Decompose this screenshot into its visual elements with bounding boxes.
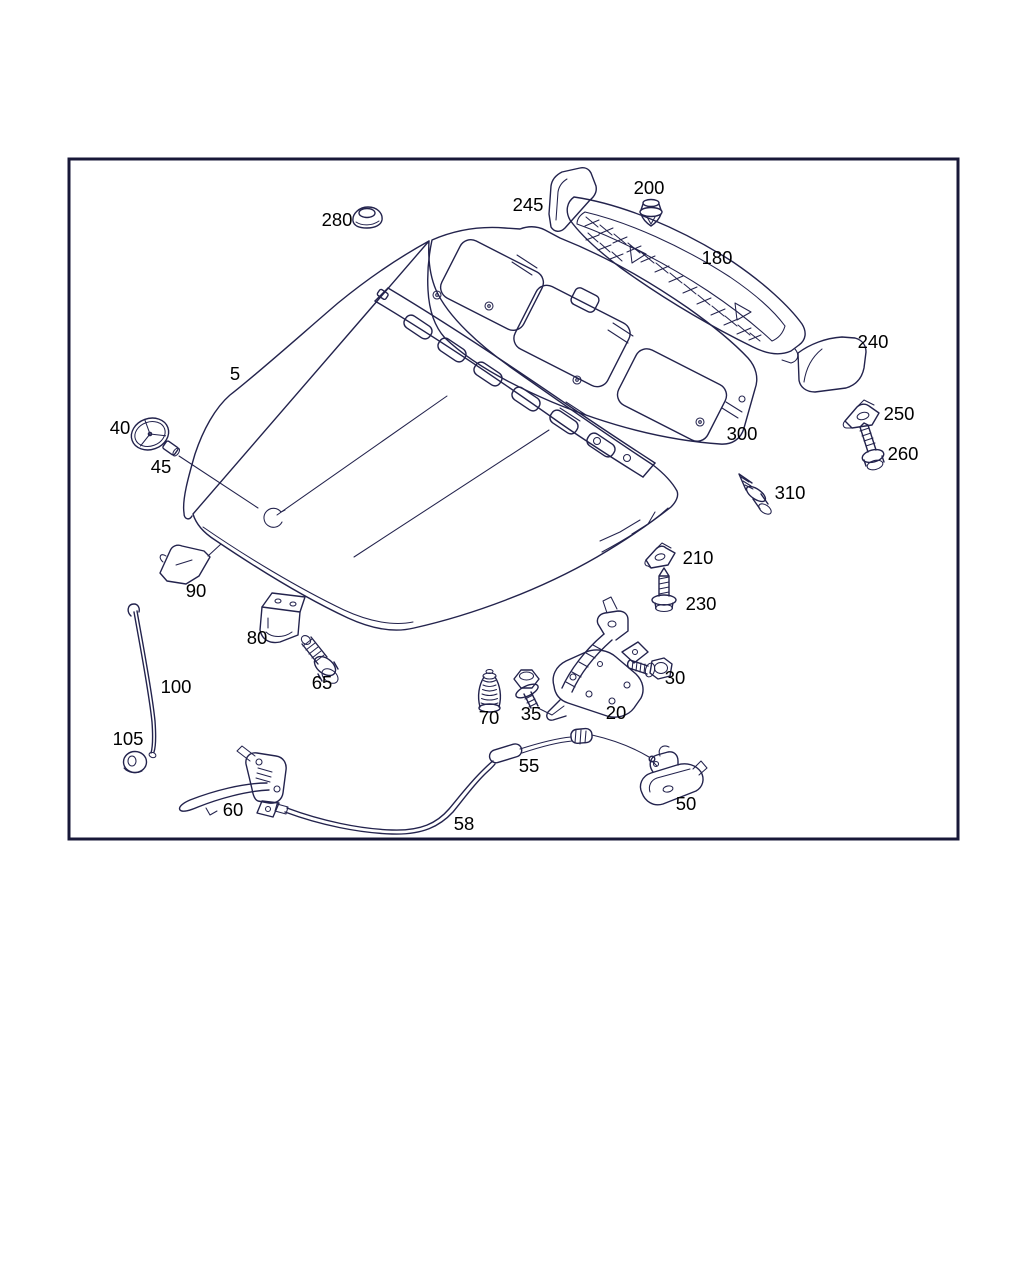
part-label-50[interactable]: 50 [676, 793, 697, 814]
buffer-70-drawing [479, 670, 501, 713]
emblem-pin-drawing [162, 440, 258, 508]
diagram-frame [69, 159, 958, 839]
rivet-310-drawing [739, 474, 773, 516]
part-label-250[interactable]: 250 [884, 403, 915, 424]
part-label-58[interactable]: 58 [454, 813, 475, 834]
screw-260-drawing [860, 423, 885, 471]
part-label-65[interactable]: 65 [312, 672, 333, 693]
part-label-20[interactable]: 20 [606, 702, 627, 723]
part-label-45[interactable]: 45 [151, 456, 172, 477]
clip-250-drawing [843, 400, 879, 428]
part-label-55[interactable]: 55 [519, 755, 540, 776]
cap-nut-280-drawing [353, 207, 382, 228]
part-label-30[interactable]: 30 [665, 667, 686, 688]
part-label-35[interactable]: 35 [521, 703, 542, 724]
part-label-280[interactable]: 280 [322, 209, 353, 230]
grille-drawing [567, 197, 805, 363]
clip-210-drawing [645, 543, 675, 568]
part-label-70[interactable]: 70 [479, 707, 500, 728]
part-label-240[interactable]: 240 [858, 331, 889, 352]
cable-55-drawing [488, 728, 657, 766]
part-label-100[interactable]: 100 [161, 676, 192, 697]
part-label-310[interactable]: 310 [775, 482, 806, 503]
part-label-40[interactable]: 40 [110, 417, 131, 438]
hood-parts-diagram: 5 20 30 35 40 45 50 55 58 60 65 70 80 90… [0, 0, 1024, 1280]
part-label-105[interactable]: 105 [113, 728, 144, 749]
part-label-60[interactable]: 60 [223, 799, 244, 820]
part-label-245[interactable]: 245 [513, 194, 544, 215]
part-label-300[interactable]: 300 [727, 423, 758, 444]
hood-lock-50-drawing [640, 746, 707, 805]
part-label-230[interactable]: 230 [686, 593, 717, 614]
part-label-260[interactable]: 260 [888, 443, 919, 464]
part-label-180[interactable]: 180 [702, 247, 733, 268]
star-emblem-drawing [127, 413, 173, 455]
parts-diagram-page: 5 20 30 35 40 45 50 55 58 60 65 70 80 90… [0, 0, 1024, 1280]
grommet-105-drawing [124, 752, 147, 773]
grille-mesh-hatch [585, 217, 761, 341]
part-label-5[interactable]: 5 [230, 363, 240, 384]
part-label-210[interactable]: 210 [683, 547, 714, 568]
part-labels: 5 20 30 35 40 45 50 55 58 60 65 70 80 90… [110, 177, 919, 834]
part-label-200[interactable]: 200 [634, 177, 665, 198]
part-label-90[interactable]: 90 [186, 580, 207, 601]
screw-230-drawing [652, 568, 676, 612]
part-label-80[interactable]: 80 [247, 627, 268, 648]
hood-panel-drawing [184, 241, 678, 630]
cover-240-drawing [798, 337, 866, 392]
hinge-20-drawing [547, 597, 648, 720]
clamp-90-drawing [160, 544, 221, 584]
